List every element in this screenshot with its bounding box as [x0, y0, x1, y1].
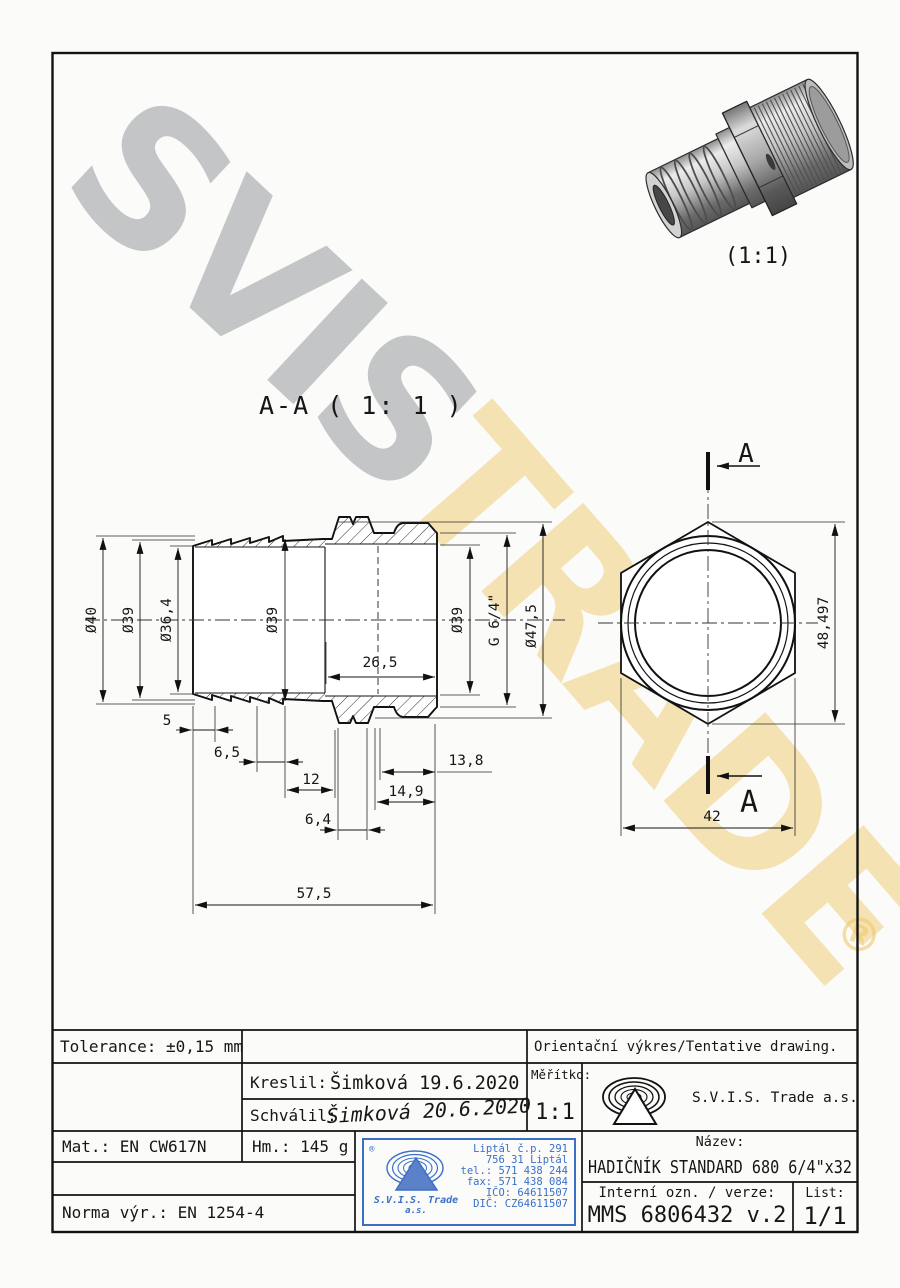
dim-48-497: 48,497: [816, 597, 832, 649]
internal-ref-value: MMS 6806432 v.2: [588, 1203, 787, 1228]
company-logo: [603, 1078, 665, 1124]
dim-d40: Ø40: [84, 607, 100, 633]
stamp-name-2: a.s.: [405, 1206, 427, 1216]
cut-label-top: A: [738, 439, 754, 469]
cut-label-bottom: A: [740, 785, 758, 820]
section-view-label: A-A ( 1: 1 ): [259, 391, 464, 420]
logo-triangle: [614, 1089, 656, 1124]
stamp-registered: ®: [369, 1145, 375, 1155]
drawing-sheet: (1:1) A-A ( 1: 1 ) Ø40 Ø39 Ø36,4 Ø39 Ø39: [0, 0, 900, 1288]
part-title-label: Název:: [696, 1134, 745, 1150]
dim-14-9: 14,9: [389, 784, 424, 800]
orientation-note: Orientační výkres/Tentative drawing.: [534, 1039, 837, 1055]
mass-text: Hm.: 145 g: [252, 1137, 348, 1156]
dim-57-5: 57,5: [297, 886, 332, 902]
scale-value: 1:1: [535, 1100, 575, 1125]
hatch-bottom-wall: [193, 693, 437, 723]
tolerance-text: Tolerance: ±0,15 mm: [60, 1037, 243, 1056]
dim-d47-5: Ø47,5: [524, 604, 540, 648]
hatch-top-wall: [193, 517, 437, 547]
title-block: Tolerance: ±0,15 mm Orientační výkres/Te…: [52, 1030, 858, 1232]
pictorial-3d-view: [631, 68, 864, 260]
dim-6-5: 6,5: [214, 745, 240, 761]
stamp-line: DIČ: CZ64611507: [473, 1197, 568, 1210]
drawn-label: Kreslil:: [250, 1073, 327, 1092]
dim-g64: G 6/4": [487, 594, 503, 646]
stamp-address: Liptál č.p. 291 756 31 Liptál tel.: 571 …: [461, 1143, 568, 1210]
sheet-value: 1/1: [803, 1202, 846, 1230]
dim-6-4: 6,4: [305, 812, 331, 828]
dim-26-5: 26,5: [363, 655, 398, 671]
dim-d36-4: Ø36,4: [159, 598, 175, 642]
stamp-name-1: S.V.I.S. Trade: [374, 1195, 458, 1206]
sheet-label: List:: [805, 1186, 844, 1201]
dim-42: 42: [703, 809, 720, 825]
standard-text: Norma výr.: EN 1254-4: [62, 1203, 264, 1222]
dim-d39-right: Ø39: [450, 607, 466, 633]
part-title-value: HADIČNÍK STANDARD 680 6/4"x32: [588, 1156, 852, 1178]
company-stamp: ® S.V.I.S. Trade a.s. Liptál č.p. 291 75…: [363, 1139, 575, 1225]
dim-d39-mid: Ø39: [265, 607, 281, 633]
approved-label: Schválil:: [250, 1106, 337, 1125]
internal-ref-label: Interní ozn. / verze:: [598, 1185, 775, 1201]
dim-12: 12: [302, 772, 319, 788]
dim-13-8: 13,8: [449, 753, 484, 769]
company-name: S.V.I.S. Trade a.s.: [692, 1090, 858, 1106]
pictorial-scale-label: (1:1): [725, 244, 791, 269]
scale-label: Měřítko:: [531, 1067, 591, 1082]
drawn-value: Šimková 19.6.2020: [330, 1072, 519, 1094]
dim-d39-left: Ø39: [121, 607, 137, 633]
dim-5: 5: [163, 713, 172, 729]
end-view: A A 48,497 42: [598, 439, 845, 836]
material-text: Mat.: EN CW617N: [62, 1137, 207, 1156]
